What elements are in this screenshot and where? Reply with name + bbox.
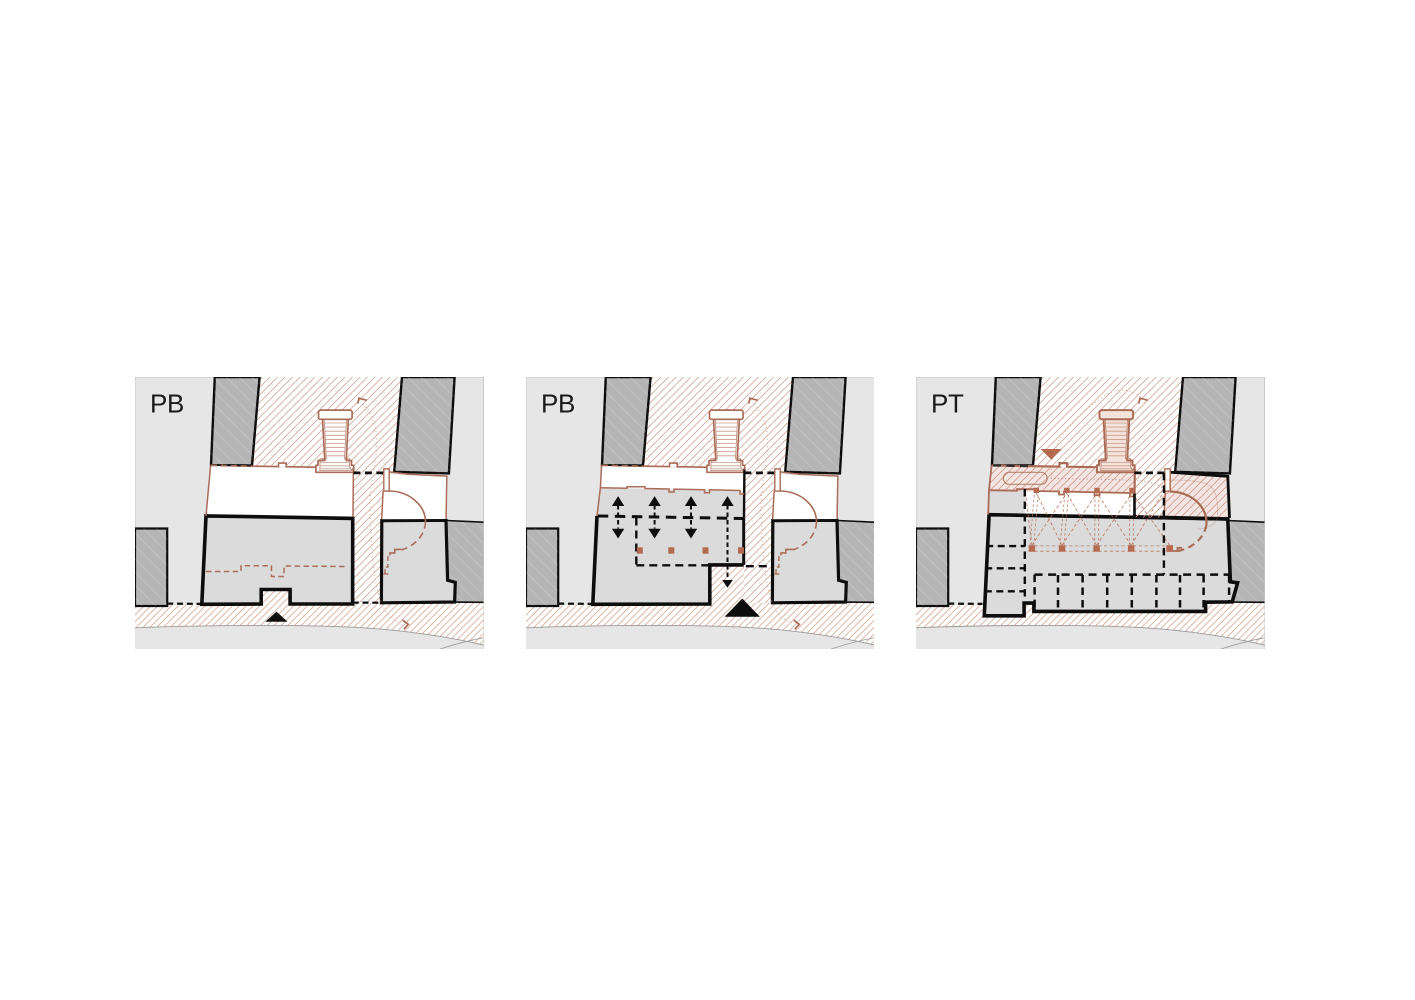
svg-text:PB: PB: [541, 388, 575, 418]
svg-text:PB: PB: [150, 388, 184, 418]
svg-text:PT: PT: [931, 388, 964, 418]
